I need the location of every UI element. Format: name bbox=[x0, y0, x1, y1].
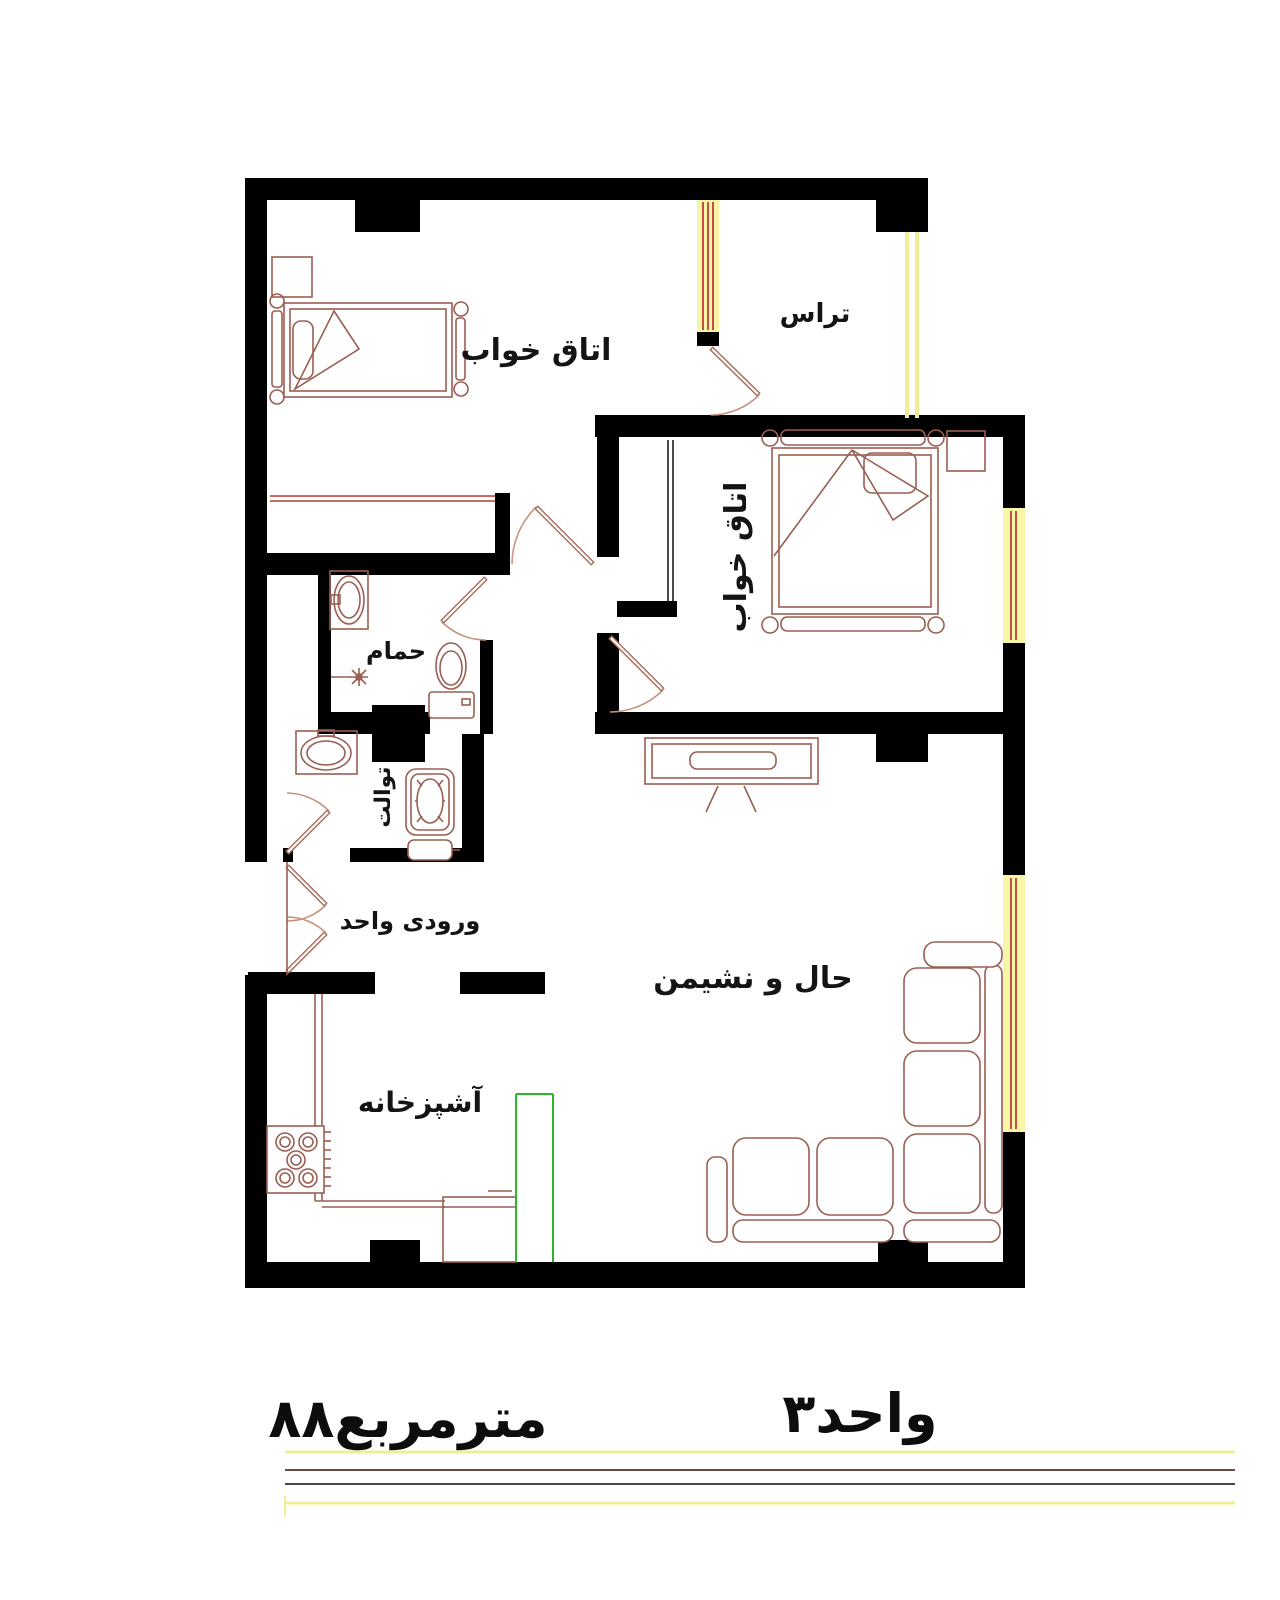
blanket-fold bbox=[295, 311, 359, 389]
door-bedroom1 bbox=[512, 507, 593, 564]
door-terrace bbox=[711, 348, 759, 415]
window-bedroom2 bbox=[1003, 508, 1025, 643]
floor-plan-svg: اتاق خواب تراس اتاق خواب حمام توالت ورود… bbox=[0, 0, 1280, 1600]
pillow bbox=[293, 321, 313, 379]
label-bedroom1: اتاق خواب bbox=[461, 333, 612, 368]
unit-number-label: واحد۳ bbox=[782, 1382, 937, 1445]
floor-plan-page: اتاق خواب تراس اتاق خواب حمام توالت ورود… bbox=[0, 0, 1280, 1600]
bedroom1-closet bbox=[270, 496, 495, 501]
area-label: ۸۸مترمربع bbox=[268, 1387, 547, 1450]
tv bbox=[690, 752, 776, 769]
window-bedroom1-terrace bbox=[697, 200, 719, 346]
footboard bbox=[781, 617, 925, 631]
kitchen-peninsula bbox=[516, 1094, 553, 1262]
label-bathroom: حمام bbox=[366, 637, 426, 665]
title-block-rules bbox=[285, 1452, 1235, 1516]
toilet-sink bbox=[296, 730, 357, 774]
squat-toilet bbox=[406, 769, 460, 860]
bedroom2-closet bbox=[668, 440, 673, 601]
blanket-line bbox=[774, 450, 852, 556]
stove bbox=[267, 1126, 331, 1193]
label-terrace: تراس bbox=[780, 299, 851, 329]
label-kitchen: آشپزخانه bbox=[358, 1085, 484, 1119]
double-bed bbox=[762, 430, 944, 633]
single-bed bbox=[270, 294, 468, 404]
shower bbox=[331, 668, 368, 686]
bedroom1-furniture bbox=[270, 257, 495, 501]
tv-console bbox=[645, 738, 818, 812]
nightstand bbox=[272, 257, 312, 297]
flush-box bbox=[408, 840, 452, 860]
bathroom-sink bbox=[330, 571, 368, 629]
wc-toilet bbox=[429, 643, 474, 718]
kitchen-counter bbox=[315, 994, 516, 1262]
armrest bbox=[707, 1157, 727, 1242]
terrace-railing bbox=[907, 232, 917, 418]
label-toilet: توالت bbox=[371, 766, 396, 827]
stove-knobs bbox=[324, 1132, 331, 1186]
label-entrance: ورودی واحد bbox=[340, 907, 481, 935]
window-living bbox=[1003, 875, 1025, 1132]
title-block: واحد۳ ۸۸مترمربع bbox=[268, 1382, 1235, 1516]
door-bathroom bbox=[442, 578, 486, 640]
label-living: حال و نشیمن bbox=[653, 961, 853, 996]
door-entrance-upper bbox=[287, 866, 326, 921]
kitchen-fixtures bbox=[267, 994, 553, 1262]
label-bedroom2: اتاق خواب bbox=[719, 482, 754, 633]
bedroom2-furniture bbox=[668, 430, 985, 633]
door-toilet bbox=[287, 793, 329, 853]
